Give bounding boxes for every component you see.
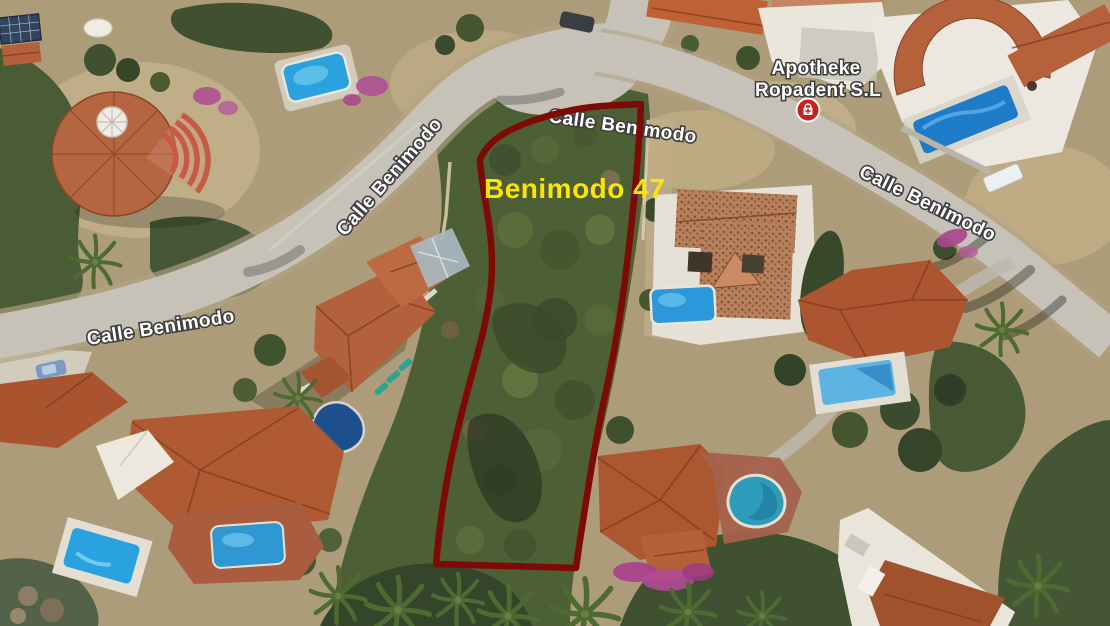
- poi-name: Apotheke: [772, 58, 861, 79]
- poi-subname: Ropadent S.L: [755, 80, 881, 101]
- parcel-label: Benimodo 47: [484, 173, 665, 204]
- solar-panel-house: [0, 14, 43, 66]
- pharmacy-bag-icon[interactable]: [797, 99, 820, 122]
- map-canvas[interactable]: Calle Benimodo Calle Benimodo Calle Beni…: [0, 0, 1110, 626]
